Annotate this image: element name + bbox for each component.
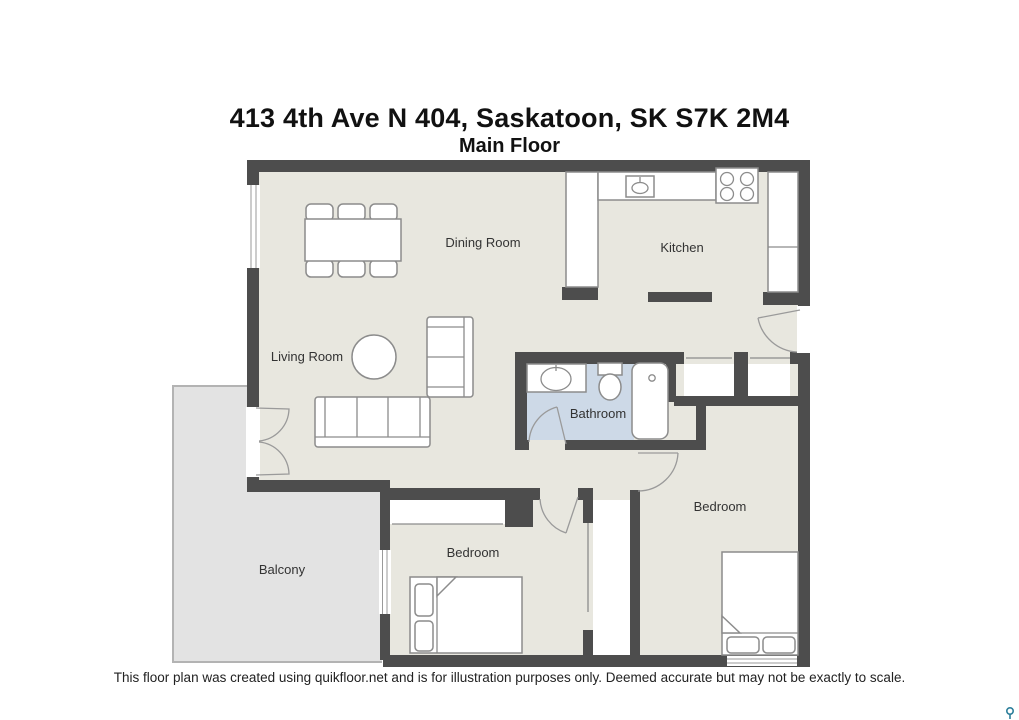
refrigerator-counter	[768, 172, 798, 292]
wall-segment	[798, 160, 810, 667]
entry-closet	[684, 364, 734, 396]
kitchen-counter	[598, 172, 716, 200]
dining-table	[305, 219, 401, 261]
wall-segment	[674, 352, 684, 364]
kitchen-counter	[566, 172, 598, 287]
toilet-tank	[598, 363, 622, 375]
bed-small-bedroom	[410, 577, 522, 653]
pillow	[415, 584, 433, 616]
room-label-balcony: Balcony	[259, 562, 306, 577]
entry-door-opening	[797, 306, 811, 353]
room-label-bathroom: Bathroom	[570, 406, 626, 421]
pillow	[763, 637, 795, 653]
pillow	[727, 637, 759, 653]
wall-segment	[674, 396, 798, 406]
wall-segment	[696, 406, 706, 450]
window	[727, 656, 797, 666]
wall-segment	[578, 488, 593, 500]
wall-segment	[515, 440, 529, 450]
wall-segment	[630, 490, 640, 660]
watermark-circle	[1007, 708, 1013, 714]
window	[379, 550, 391, 614]
chair	[306, 260, 333, 277]
wall-segment	[515, 352, 676, 364]
dining-set	[305, 204, 401, 277]
coffee-table	[352, 335, 396, 379]
watermark-icon	[1007, 708, 1013, 719]
chair	[370, 260, 397, 277]
room-label-dining: Dining Room	[445, 235, 520, 250]
wall-segment	[583, 500, 593, 523]
wall-segment	[562, 287, 598, 300]
wall-segment	[565, 440, 700, 450]
toilet-bowl	[599, 374, 621, 400]
floor-plan: Dining Room Kitchen Living Room Bathroom…	[0, 0, 1019, 720]
room-label-living: Living Room	[271, 349, 343, 364]
wall-segment	[583, 630, 593, 656]
wall-segment	[515, 352, 527, 450]
bathtub	[632, 363, 668, 439]
wall-segment	[505, 498, 533, 527]
pillow	[415, 621, 433, 651]
room-label-bedroom-large: Bedroom	[694, 499, 747, 514]
bed-large-bedroom	[722, 552, 798, 655]
balcony-floor	[172, 385, 247, 492]
wall-segment	[763, 292, 798, 305]
floor-plan-page: 413 4th Ave N 404, Saskatoon, SK S7K 2M4…	[0, 0, 1019, 720]
room-label-bedroom-small: Bedroom	[447, 545, 500, 560]
balcony-door-opening	[246, 407, 260, 477]
wall-segment	[247, 480, 390, 492]
balcony-floor	[172, 492, 382, 663]
disclaimer-text: This floor plan was created using quikfl…	[0, 670, 1019, 685]
wall-segment	[790, 352, 798, 364]
bedroom-closet	[593, 500, 630, 655]
chair	[338, 260, 365, 277]
window	[246, 185, 260, 268]
room-label-kitchen: Kitchen	[660, 240, 703, 255]
entry-closet	[748, 364, 790, 396]
wall-segment	[648, 292, 712, 302]
bedroom-closet	[390, 500, 505, 524]
sofa	[315, 397, 430, 447]
